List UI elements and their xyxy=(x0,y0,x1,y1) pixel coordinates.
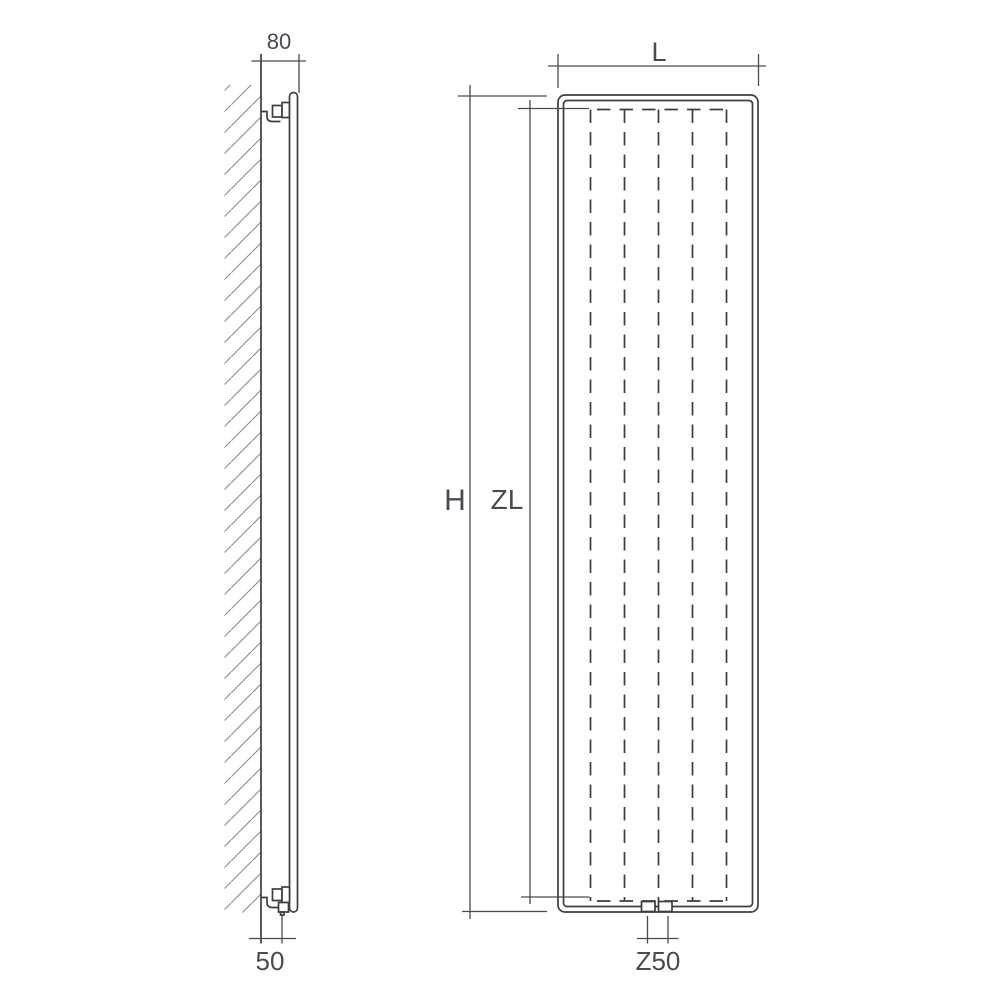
side-view: 80 50 xyxy=(225,29,307,976)
dimension-label-width: L xyxy=(651,37,666,67)
radiator-dimension-diagram: 80 50 xyxy=(0,0,1000,1000)
dimension-label-50: 50 xyxy=(256,946,285,976)
bottom-wall-bracket xyxy=(262,887,290,915)
bracket-block-small xyxy=(273,889,283,901)
front-view: L H ZL Z50 xyxy=(444,37,766,976)
dimension-connection-spacing: Z50 xyxy=(636,916,681,976)
dimension-label-height: H xyxy=(444,484,466,517)
drawing-canvas: 80 50 xyxy=(0,0,1000,1000)
top-wall-bracket xyxy=(262,103,290,122)
bracket-block-large xyxy=(282,103,290,118)
dimension-depth-bottom: 50 xyxy=(249,915,296,976)
dimension-label-inner-height: ZL xyxy=(491,484,524,515)
radiator-panel-side xyxy=(290,93,298,913)
bracket-block-large xyxy=(282,887,290,903)
bracket-block-small xyxy=(273,106,283,118)
connection-stem xyxy=(281,912,285,915)
connection-right xyxy=(659,902,673,912)
wall-hatch xyxy=(225,85,262,913)
dimension-width: L xyxy=(548,37,766,88)
dimension-depth-top: 80 xyxy=(252,29,307,93)
connection-foot xyxy=(279,903,289,913)
dimension-label-80: 80 xyxy=(267,29,291,54)
dimension-label-connection: Z50 xyxy=(636,946,681,976)
connection-left xyxy=(642,902,656,912)
